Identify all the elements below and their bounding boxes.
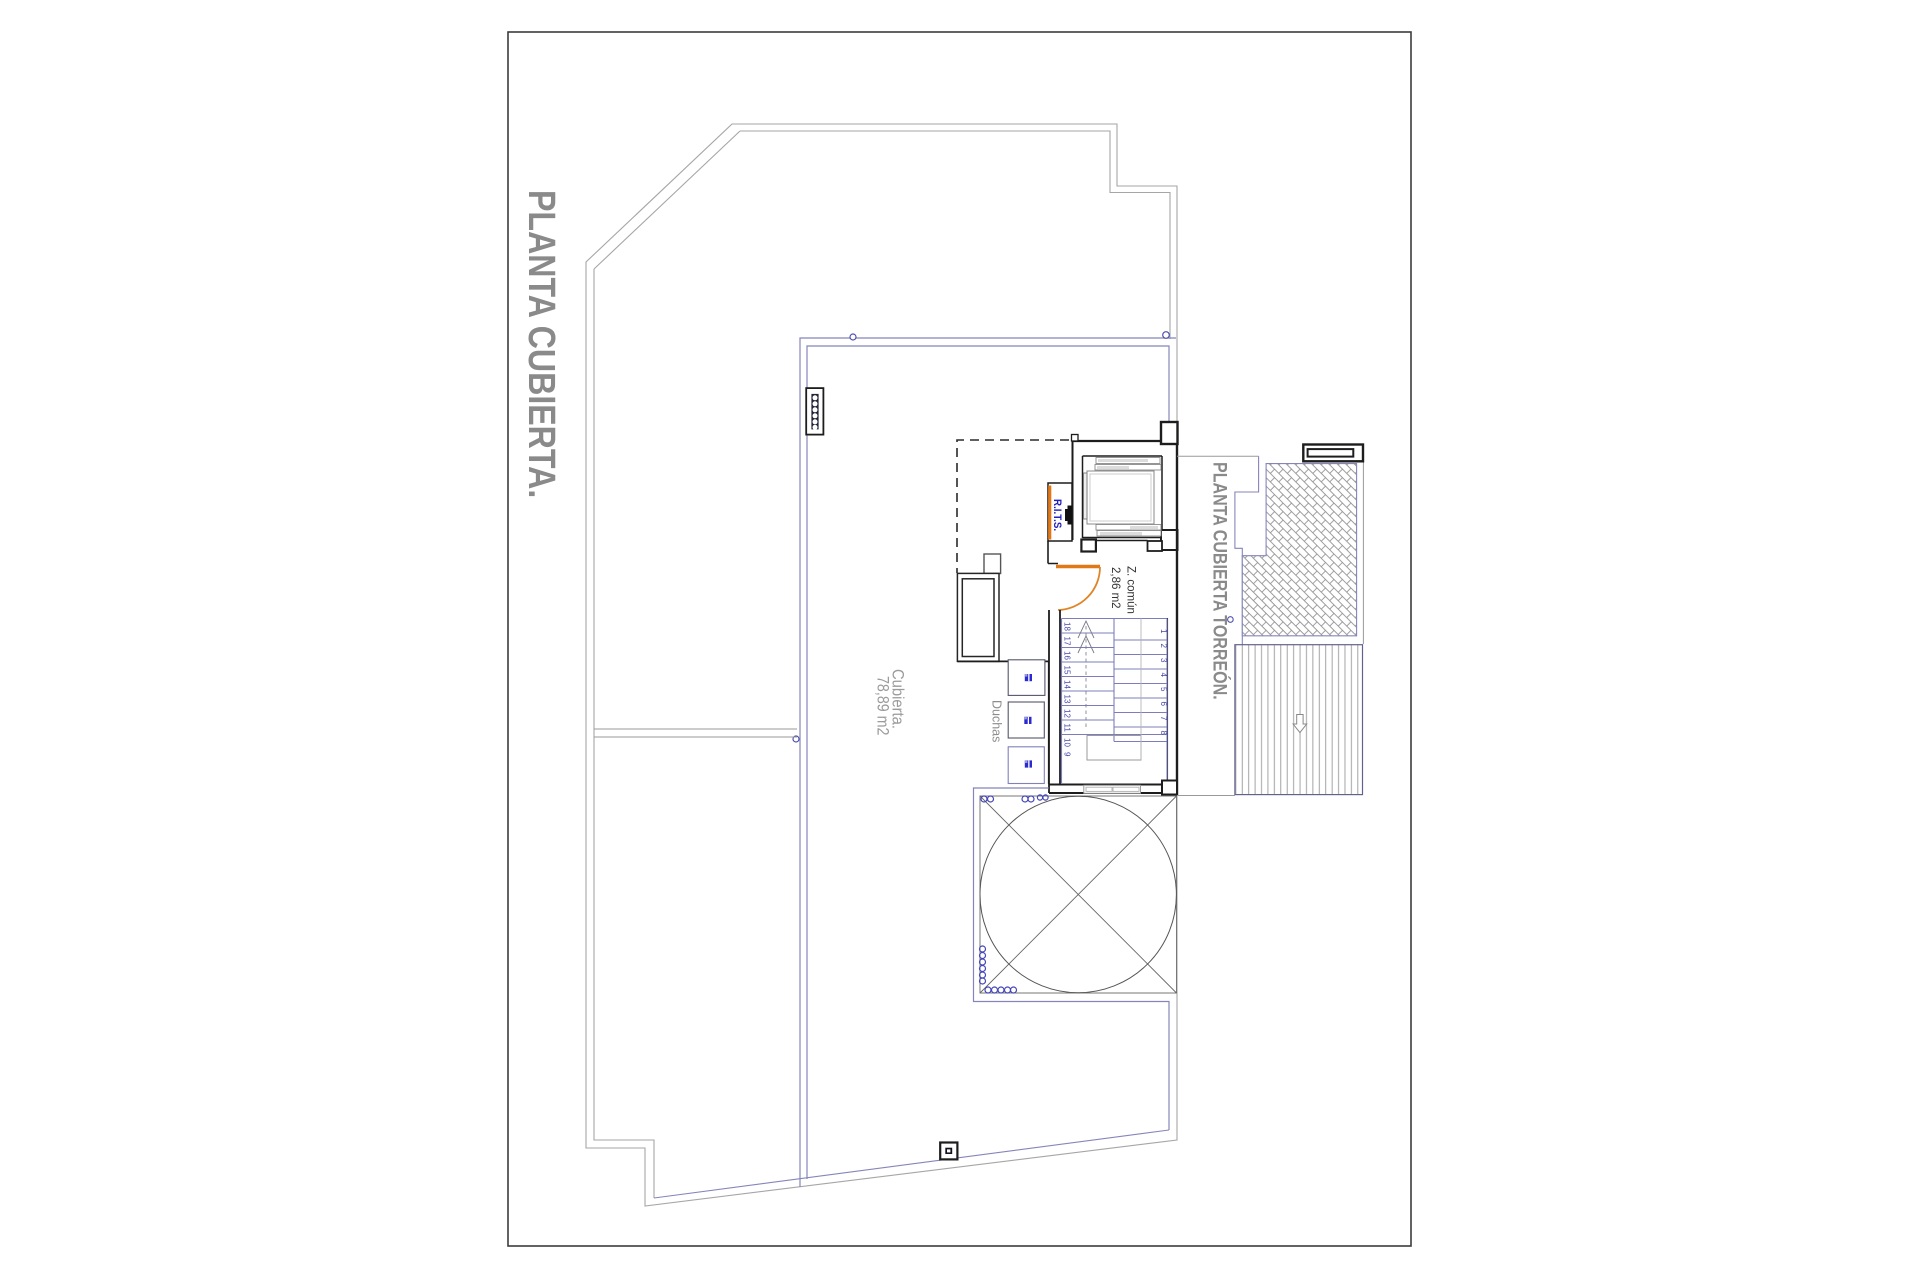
svg-text:R.I.T.S.: R.I.T.S. bbox=[1051, 499, 1063, 531]
svg-text:17: 17 bbox=[1063, 637, 1072, 646]
svg-text:5: 5 bbox=[1159, 687, 1168, 692]
svg-text:6: 6 bbox=[1159, 702, 1168, 707]
svg-text:3: 3 bbox=[1159, 658, 1168, 663]
svg-text:1: 1 bbox=[1159, 629, 1168, 634]
svg-text:Duchas: Duchas bbox=[990, 700, 1004, 742]
svg-text:12: 12 bbox=[1063, 709, 1072, 718]
svg-text:PLANTA CUBIERTA TORREÓN.: PLANTA CUBIERTA TORREÓN. bbox=[1209, 462, 1232, 700]
svg-text:14: 14 bbox=[1063, 680, 1072, 689]
svg-text:15: 15 bbox=[1063, 666, 1072, 675]
svg-text:8: 8 bbox=[1159, 731, 1168, 736]
svg-text:9: 9 bbox=[1063, 752, 1072, 757]
svg-text:10: 10 bbox=[1063, 738, 1072, 747]
svg-text:4: 4 bbox=[1159, 673, 1168, 678]
svg-text:7: 7 bbox=[1159, 716, 1168, 721]
svg-text:2,86 m2: 2,86 m2 bbox=[1109, 567, 1121, 609]
svg-text:2: 2 bbox=[1159, 644, 1168, 649]
svg-text:16: 16 bbox=[1063, 651, 1072, 660]
svg-text:78,89 m2: 78,89 m2 bbox=[873, 676, 891, 736]
svg-text:Z. común: Z. común bbox=[1125, 566, 1137, 614]
svg-text:PLANTA CUBIERTA.: PLANTA CUBIERTA. bbox=[520, 190, 562, 498]
svg-text:11: 11 bbox=[1063, 724, 1072, 733]
svg-text:13: 13 bbox=[1063, 695, 1072, 704]
svg-text:18: 18 bbox=[1063, 622, 1072, 631]
